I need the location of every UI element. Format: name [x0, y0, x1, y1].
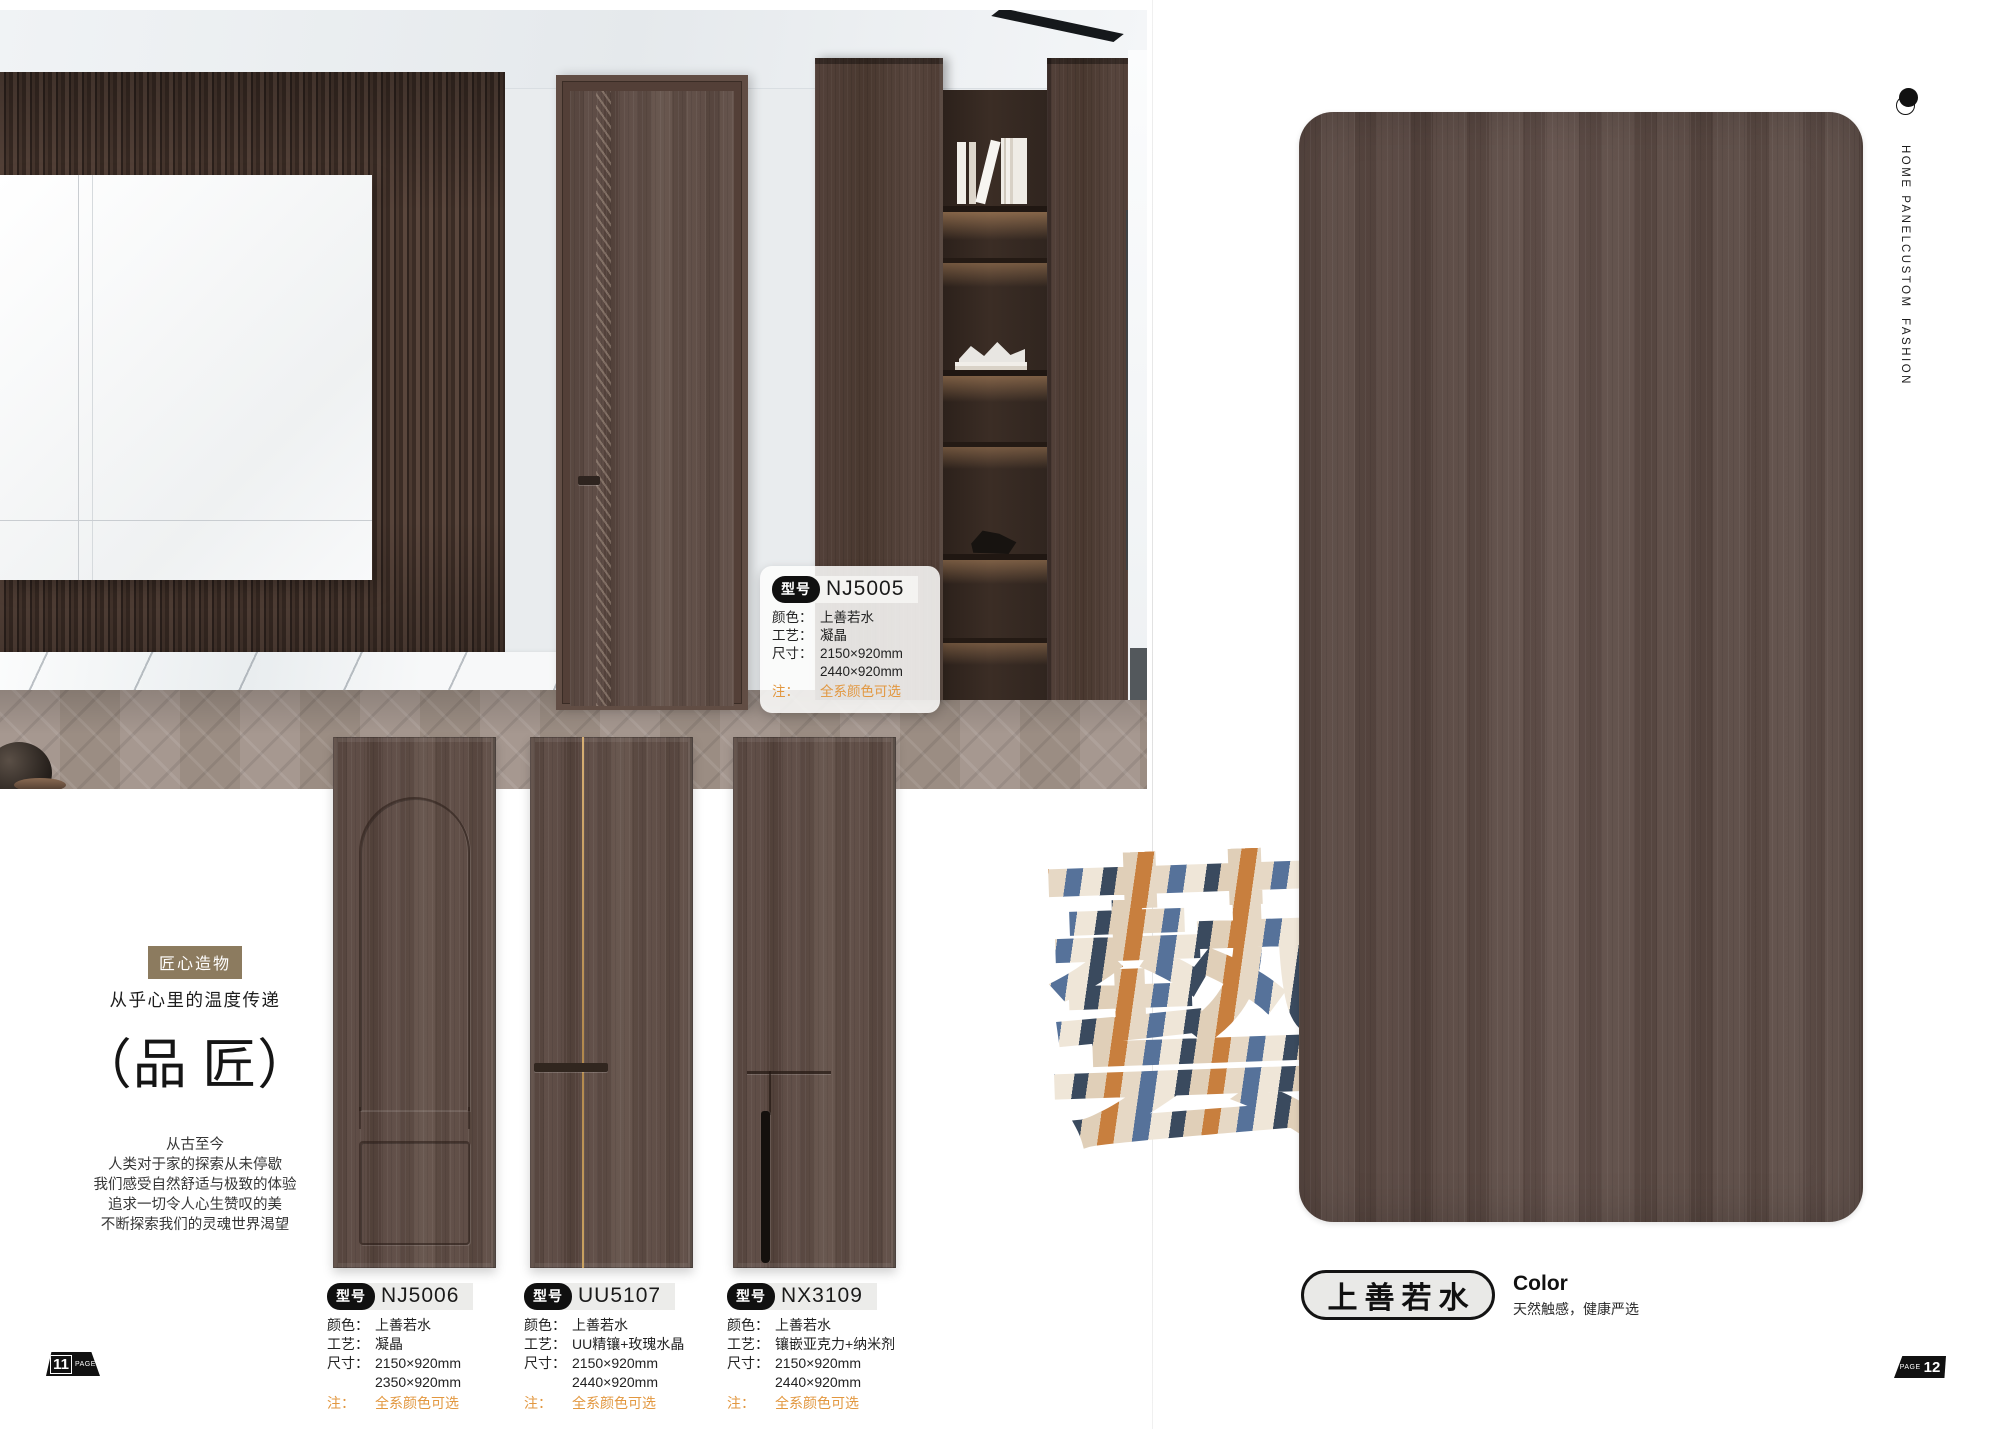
spec-label-size: 尺寸：: [772, 645, 820, 681]
book: [975, 140, 1000, 205]
door-thumb-nx3109: [733, 737, 896, 1268]
spec-block-nx3109: 型号 NX3109 颜色：上善若水 工艺：镶嵌亚克力+纳米剂 尺寸： 2150×…: [727, 1283, 937, 1413]
spec-value-color: 上善若水: [572, 1316, 628, 1335]
intro-line: 从古至今: [55, 1135, 335, 1155]
shelf-glow: [943, 263, 1047, 287]
spec-label-note: 注：: [727, 1394, 775, 1413]
page-number: 12: [1924, 1359, 1941, 1376]
spec-label-craft: 工艺：: [524, 1335, 572, 1354]
door-handle: [578, 476, 600, 485]
intro-subtitle: 从乎心里的温度传递: [55, 987, 335, 1012]
intro-line: 追求一切令人心生赞叹的美: [55, 1195, 335, 1215]
spec-value-note: 全系颜色可选: [572, 1394, 656, 1413]
model-tag: 型号: [327, 1283, 375, 1310]
page-label: PAGE: [75, 1361, 96, 1368]
spec-value-size: 2150×920mm2440×920mm: [775, 1354, 861, 1392]
spec-value-size: 2150×920mm2440×920mm: [820, 645, 903, 681]
spec-value-note: 全系颜色可选: [775, 1394, 859, 1413]
book: [957, 142, 966, 204]
wardrobe-right-door: [1047, 58, 1137, 700]
model-number: UU5107: [562, 1283, 675, 1310]
swatch-name: 上善若水: [1321, 1273, 1476, 1317]
shelf-glow: [943, 447, 1047, 469]
spec-label-craft: 工艺：: [327, 1335, 375, 1354]
page-label: PAGE: [1900, 1364, 1921, 1371]
spec-value-size: 2150×920mm2350×920mm: [375, 1354, 461, 1392]
spec-block-uu5107: 型号 UU5107 颜色：上善若水 工艺：UU精镶+玫瑰水晶 尺寸： 2150×…: [524, 1283, 734, 1413]
spec-value-craft: 凝晶: [375, 1335, 403, 1354]
window-sill-block: [1130, 648, 1147, 700]
intro-title: （品 匠）: [55, 1020, 335, 1099]
page-marker-left: 11 PAGE: [46, 1352, 100, 1376]
spec-label-note: 注：: [524, 1394, 572, 1413]
art-calligraphy: 藝: [1040, 850, 1340, 1200]
spec-label-craft: 工艺：: [727, 1335, 775, 1354]
door-inlay-stripe: [596, 91, 611, 706]
model-number: NJ5005: [810, 576, 918, 603]
shelf-glow: [943, 376, 1047, 402]
nav-item-fashion: FASHION: [1899, 318, 1911, 386]
nav-item-home-panel: HOME PANEL: [1899, 145, 1911, 245]
spec-value-color: 上善若水: [375, 1316, 431, 1335]
tv-panel: [0, 175, 372, 580]
model-number: NX3109: [765, 1283, 877, 1310]
model-tag: 型号: [524, 1283, 572, 1310]
door-handle: [534, 1063, 608, 1072]
spec-label-size: 尺寸：: [727, 1354, 775, 1392]
intro-badge: 匠心造物: [148, 946, 242, 979]
intro-paragraph: 从古至今 人类对于家的探索从未停歇 我们感受自然舒适与极致的体验 追求一切令人心…: [55, 1135, 335, 1235]
spec-card-nj5005: 型号 NJ5005 颜色：上善若水 工艺：凝晶 尺寸： 2150×920mm24…: [760, 566, 940, 713]
door-groove-vertical: [769, 1071, 771, 1115]
shelf-glow: [943, 212, 1047, 240]
room-photo: [0, 10, 1147, 789]
door-lower-panel: [359, 1141, 470, 1245]
spec-value-color: 上善若水: [775, 1316, 831, 1335]
page-marker-right: PAGE 12: [1894, 1356, 1946, 1378]
door-arch-sides: [359, 1107, 470, 1129]
spec-value-color: 上善若水: [820, 609, 874, 627]
wood-swatch-panel: [1299, 112, 1863, 1222]
spec-block-nj5006: 型号 NJ5006 颜色：上善若水 工艺：凝晶 尺寸： 2150×920mm23…: [327, 1283, 527, 1413]
nav-item-custom: CUSTOM: [1899, 244, 1911, 309]
spec-value-craft: 镶嵌亚克力+纳米剂: [775, 1335, 895, 1354]
intro-block: 匠心造物 从乎心里的温度传递 （品 匠） 从古至今 人类对于家的探索从未停歇 我…: [55, 946, 335, 1235]
model-tag: 型号: [727, 1283, 775, 1310]
spec-value-note: 全系颜色可选: [375, 1394, 459, 1413]
shelf-niche: [943, 90, 1047, 700]
spec-label-color: 颜色：: [727, 1316, 775, 1335]
door-gold-inlay: [582, 737, 584, 1268]
door-thumb-uu5107: [530, 737, 693, 1268]
book: [1001, 138, 1027, 204]
window-strip: [1128, 50, 1147, 700]
spec-label-note: 注：: [772, 683, 820, 701]
shelf-glow: [943, 643, 1047, 665]
book: [969, 142, 976, 204]
color-subtitle: 天然触感，健康严选: [1513, 1299, 1639, 1319]
spec-value-size: 2150×920mm2440×920mm: [572, 1354, 658, 1392]
page-number: 11: [50, 1355, 72, 1374]
spec-label-color: 颜色：: [772, 609, 820, 627]
intro-line: 不断探索我们的灵魂世界渴望: [55, 1215, 335, 1235]
spec-label-color: 颜色：: [524, 1316, 572, 1335]
spec-label-size: 尺寸：: [327, 1354, 375, 1392]
intro-line: 人类对于家的探索从未停歇: [55, 1155, 335, 1175]
panel-seam: [0, 520, 372, 521]
spec-value-craft: 凝晶: [820, 627, 847, 645]
color-label: Color: [1513, 1272, 1568, 1296]
model-tag: 型号: [772, 576, 820, 603]
spec-label-color: 颜色：: [327, 1316, 375, 1335]
window-frame-line: [1126, 210, 1128, 570]
shelf-glow: [943, 560, 1047, 584]
intro-line: 我们感受自然舒适与极致的体验: [55, 1175, 335, 1195]
door-thumb-nj5006: [333, 737, 496, 1268]
scene-door-leaf: [570, 91, 734, 706]
scene-door-frame: [556, 75, 748, 710]
spec-label-size: 尺寸：: [524, 1354, 572, 1392]
spec-value-note: 全系颜色可选: [820, 683, 901, 701]
door-handle-strip: [761, 1111, 770, 1263]
door-arch-moulding: [359, 797, 470, 1111]
model-number: NJ5006: [365, 1283, 473, 1310]
swatch-name-pill: 上善若水: [1301, 1270, 1495, 1320]
decor-rock: [967, 528, 1019, 554]
spec-label-craft: 工艺：: [772, 627, 820, 645]
decor-books: [955, 362, 1027, 370]
catalog-spread: 型号 NJ5005 颜色：上善若水 工艺：凝晶 尺寸： 2150×920mm24…: [0, 0, 2000, 1429]
logo-filled-circle: [1899, 88, 1918, 107]
spec-value-craft: UU精镶+玫瑰水晶: [572, 1335, 684, 1354]
spec-label-note: 注：: [327, 1394, 375, 1413]
lamp-base: [14, 778, 66, 789]
page-gutter: [1152, 0, 1153, 1429]
brand-logo-icon: [1896, 88, 1922, 116]
decor-sculpture: [959, 342, 1025, 362]
door-groove-horizontal: [747, 1071, 831, 1074]
